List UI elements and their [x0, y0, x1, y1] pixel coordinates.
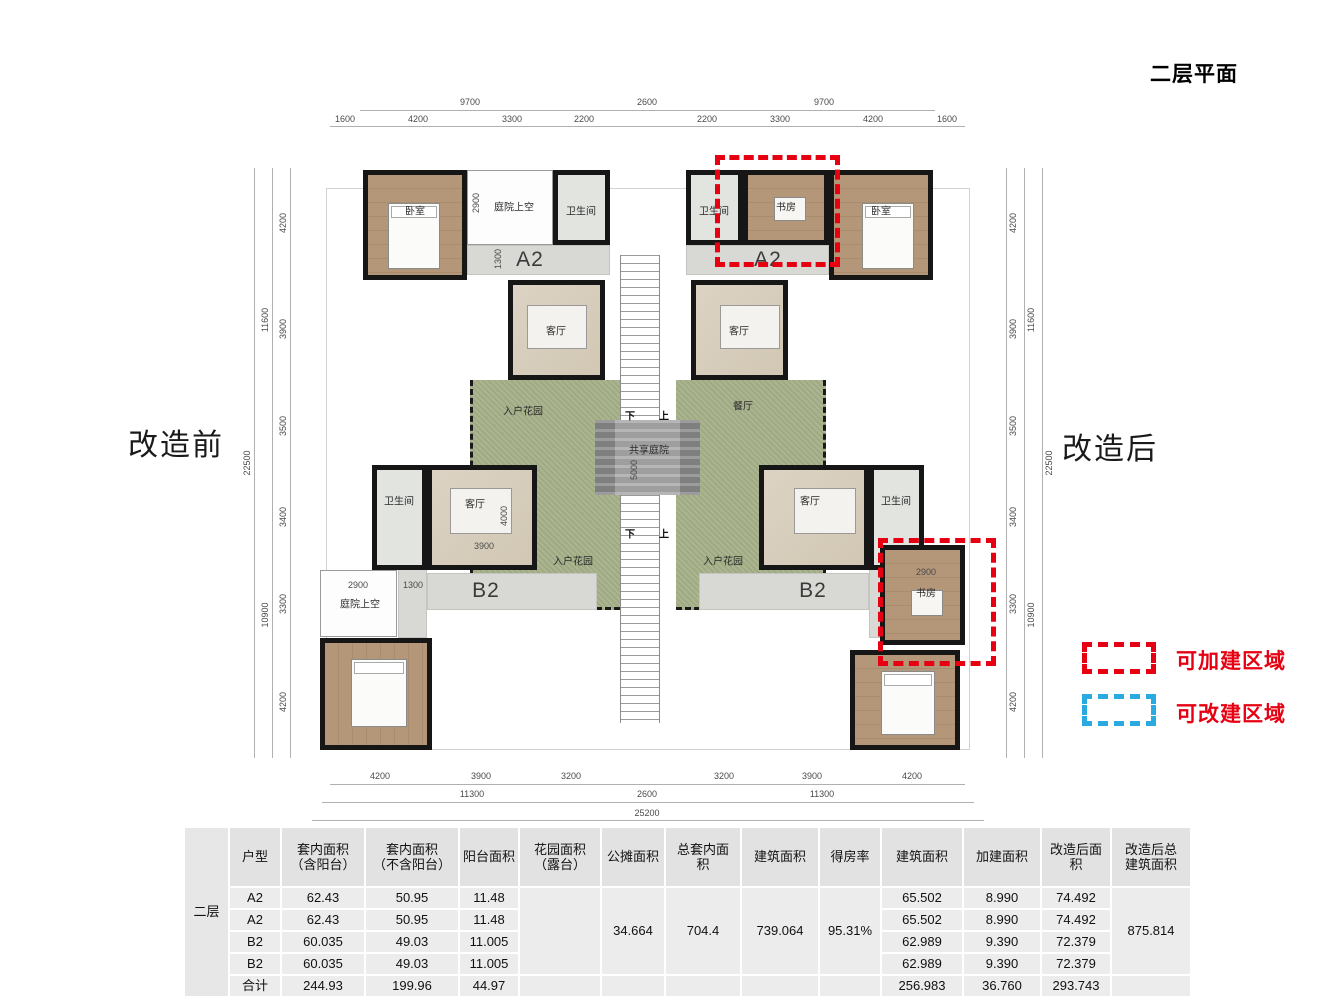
dim-label: 1600 [335, 114, 355, 124]
dim-label: 3300 [502, 114, 522, 124]
room-label-living: 客厅 [546, 323, 566, 338]
cell-type: A2 [229, 909, 281, 931]
cell: 11.005 [459, 931, 519, 953]
cell: 8.990 [963, 887, 1041, 909]
dim-line [272, 168, 273, 758]
room-label-shared-courtyard: 共享庭院 [629, 442, 669, 457]
dim-label: 9700 [814, 97, 834, 107]
room-label-living: 客厅 [465, 496, 485, 511]
table-header-row: 二层 户型 套内面积 （含阳台） 套内面积 （不含阳台） 阳台面积 花园面积 （… [184, 827, 1191, 887]
room-label-entry-garden: 入户花园 [503, 403, 543, 418]
dim-label: 25200 [634, 808, 659, 818]
room-label-bedroom: 卧室 [405, 203, 425, 218]
cell-empty [601, 975, 665, 997]
room-label-dining: 餐厅 [733, 398, 753, 413]
modifiable-area-label: 可改建区域 [1176, 698, 1286, 728]
dim-line [290, 168, 291, 758]
col-header: 加建面积 [963, 827, 1041, 887]
cell-empty [819, 975, 881, 997]
col-header: 阳台面积 [459, 827, 519, 887]
dim-label: 3900 [278, 319, 288, 339]
col-header: 改造后面 积 [1041, 827, 1111, 887]
addable-area-box-upper [715, 155, 840, 267]
bedroom-upper-left [363, 170, 467, 280]
cell: 49.03 [365, 931, 459, 953]
dim-label: 11600 [260, 308, 270, 332]
dim-line [1042, 168, 1043, 758]
inner-dim: 5000 [629, 460, 639, 480]
cell: 8.990 [963, 909, 1041, 931]
room-label-entry-garden: 入户花园 [553, 553, 593, 568]
dim-line [312, 820, 984, 821]
bedroom-upper-right [829, 170, 933, 280]
cell: 62.989 [881, 931, 963, 953]
dim-label: 22500 [242, 450, 252, 475]
addable-area-label: 可加建区域 [1176, 645, 1286, 675]
cell-type: 合计 [229, 975, 281, 997]
cell: 60.035 [281, 953, 365, 975]
inner-dim: 1300 [403, 580, 423, 590]
dim-label: 10900 [1026, 602, 1036, 627]
dim-line [1006, 168, 1007, 758]
dim-label: 4200 [863, 114, 883, 124]
inner-dim: 3900 [474, 541, 494, 551]
cell-empty [1111, 975, 1191, 997]
unit-label-b2-right: B2 [799, 579, 827, 603]
cell-construction-area: 739.064 [741, 887, 819, 975]
cell: 44.97 [459, 975, 519, 997]
cell-type: B2 [229, 931, 281, 953]
room-label-bath: 卫生间 [881, 493, 911, 508]
dim-label: 3200 [714, 771, 734, 781]
cell: 65.502 [881, 909, 963, 931]
cell: 244.93 [281, 975, 365, 997]
room-label-living: 客厅 [800, 493, 820, 508]
dim-label: 4200 [278, 213, 288, 233]
corridor-left [398, 558, 427, 638]
room-label-courtyard-void: 庭院上空 [494, 199, 534, 214]
living-lower-right [759, 465, 869, 570]
table-group-cell: 二层 [184, 827, 229, 997]
cell: 9.390 [963, 953, 1041, 975]
cell: 199.96 [365, 975, 459, 997]
dim-label: 3900 [471, 771, 491, 781]
dim-label: 1600 [937, 114, 957, 124]
inner-dim: 2900 [348, 580, 368, 590]
cell: 60.035 [281, 931, 365, 953]
table-total-row: 合计 244.93 199.96 44.97 256.983 36.760 29… [184, 975, 1191, 997]
dim-label: 3300 [770, 114, 790, 124]
table-row: A2 62.43 50.95 11.48 34.664 704.4 739.06… [184, 887, 1191, 909]
inner-dim: 1300 [493, 249, 503, 269]
cell: 11.48 [459, 909, 519, 931]
stair-down-label: 下 [625, 526, 635, 541]
cell-empty [665, 975, 741, 997]
cell: 256.983 [881, 975, 963, 997]
dim-label: 22500 [1044, 450, 1054, 475]
col-header: 花园面积 （露台） [519, 827, 601, 887]
dim-label: 3400 [278, 507, 288, 527]
room-label-bedroom: 卧室 [871, 203, 891, 218]
living-lower-left [427, 465, 537, 570]
addable-area-swatch [1082, 642, 1156, 674]
dim-label: 3300 [1008, 594, 1018, 614]
col-header: 总套内面 积 [665, 827, 741, 887]
after-label: 改造后 [1062, 424, 1158, 468]
page-title: 二层平面 [1150, 58, 1238, 88]
dim-label: 3900 [1008, 319, 1018, 339]
dim-label: 3500 [1008, 416, 1018, 436]
unit-label-b2-left: B2 [472, 579, 500, 603]
col-header: 得房率 [819, 827, 881, 887]
cell-efficiency: 95.31% [819, 887, 881, 975]
room-label-courtyard-void: 庭院上空 [340, 596, 380, 611]
cell: 62.43 [281, 909, 365, 931]
dim-label: 11300 [460, 789, 484, 799]
cell: 65.502 [881, 887, 963, 909]
col-header: 改造后总 建筑面积 [1111, 827, 1191, 887]
room-label-bath: 卫生间 [384, 493, 414, 508]
cell: 49.03 [365, 953, 459, 975]
cell: 11.48 [459, 887, 519, 909]
dim-label: 3500 [278, 416, 288, 436]
dim-line [330, 126, 965, 127]
cell-empty [519, 975, 601, 997]
col-header: 套内面积 （不含阳台） [365, 827, 459, 887]
dim-label: 4200 [1008, 692, 1018, 712]
cell: 50.95 [365, 909, 459, 931]
cell-type: B2 [229, 953, 281, 975]
dim-line [322, 802, 974, 803]
dim-label: 3300 [278, 594, 288, 614]
cell: 50.95 [365, 887, 459, 909]
dim-line [1024, 168, 1025, 758]
cell: 62.43 [281, 887, 365, 909]
cell: 72.379 [1041, 953, 1111, 975]
cell-total-after: 875.814 [1111, 887, 1191, 975]
dim-label: 4200 [370, 771, 390, 781]
dim-label: 4200 [902, 771, 922, 781]
room-label-bath: 卫生间 [566, 203, 596, 218]
cell: 36.760 [963, 975, 1041, 997]
cell-empty [741, 975, 819, 997]
col-header: 建筑面积 [881, 827, 963, 887]
cell: 72.379 [1041, 931, 1111, 953]
bedroom-lower-left [320, 638, 432, 750]
hallway-b2-right [699, 573, 869, 610]
dim-label: 11300 [810, 789, 834, 799]
area-table: 二层 户型 套内面积 （含阳台） 套内面积 （不含阳台） 阳台面积 花园面积 （… [183, 826, 1192, 998]
cell: 62.989 [881, 953, 963, 975]
cell: 74.492 [1041, 909, 1111, 931]
inner-dim: 2900 [471, 193, 481, 213]
shared-courtyard [595, 420, 700, 495]
dim-label: 3200 [561, 771, 581, 781]
addable-area-box-lower [878, 538, 996, 666]
dim-label: 3900 [802, 771, 822, 781]
cell: 9.390 [963, 931, 1041, 953]
cell-garden-area [519, 887, 601, 975]
dim-label: 2200 [697, 114, 717, 124]
dim-label: 2200 [574, 114, 594, 124]
dim-line [254, 168, 255, 758]
cell: 11.005 [459, 953, 519, 975]
dim-label: 2600 [637, 97, 657, 107]
room-label-living: 客厅 [729, 323, 749, 338]
stairs-upper [620, 255, 660, 420]
stair-up-label: 上 [659, 408, 669, 423]
before-label: 改造前 [128, 420, 224, 464]
room-label-entry-garden: 入户花园 [703, 553, 743, 568]
dim-label: 11600 [1026, 308, 1036, 332]
floor-plan: 卧室 卧室 庭院上空 书房 卫生间 卫生间 客厅 客厅 入户花园 餐厅 入户花园… [318, 148, 978, 760]
dim-line [360, 110, 935, 111]
dim-label: 4200 [278, 692, 288, 712]
dim-label: 3400 [1008, 507, 1018, 527]
dim-label: 4200 [1008, 213, 1018, 233]
col-header: 公摊面积 [601, 827, 665, 887]
cell-type: A2 [229, 887, 281, 909]
modifiable-area-swatch [1082, 694, 1156, 726]
dim-line [330, 784, 965, 785]
unit-label-a2-left: A2 [516, 248, 544, 272]
bathroom-lower-left [372, 465, 427, 570]
stair-down-label: 下 [625, 408, 635, 423]
col-header: 户型 [229, 827, 281, 887]
stair-up-label: 上 [659, 526, 669, 541]
col-header: 套内面积 （含阳台） [281, 827, 365, 887]
cell: 74.492 [1041, 887, 1111, 909]
dim-label: 9700 [460, 97, 480, 107]
inner-dim: 4000 [499, 506, 509, 526]
dim-label: 10900 [260, 602, 270, 627]
cell-shared-area: 34.664 [601, 887, 665, 975]
dim-label: 2600 [637, 789, 657, 799]
dim-label: 4200 [408, 114, 428, 124]
cell-total-inner: 704.4 [665, 887, 741, 975]
col-header: 建筑面积 [741, 827, 819, 887]
cell: 293.743 [1041, 975, 1111, 997]
hallway-b2-left [427, 573, 597, 610]
